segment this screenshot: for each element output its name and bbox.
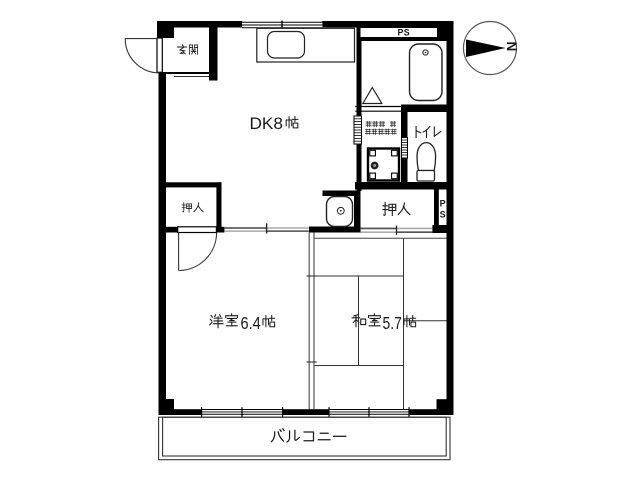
svg-text:DK8: DK8 [250,114,284,133]
svg-text:5.7: 5.7 [383,313,402,333]
svg-text:PS: PS [398,28,411,38]
svg-text:6.4: 6.4 [241,313,262,333]
svg-text:P: P [440,199,446,209]
svg-text:N: N [504,42,519,52]
svg-text:S: S [440,210,446,220]
